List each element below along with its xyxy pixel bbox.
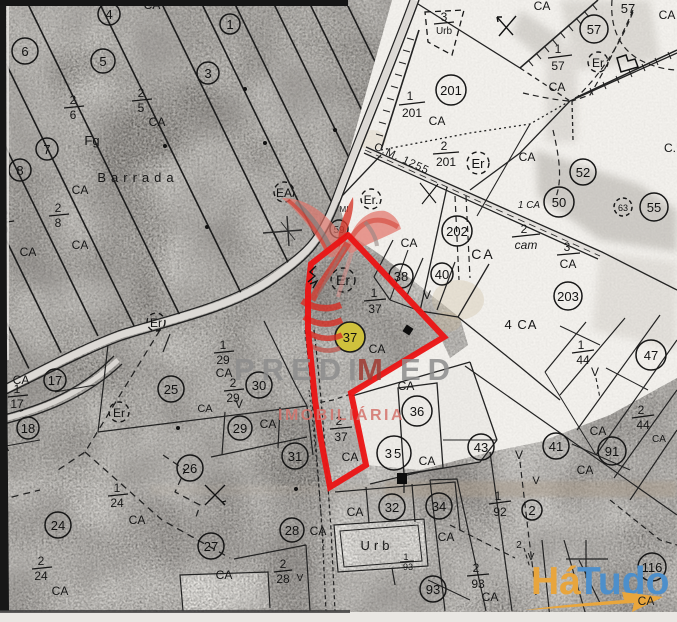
svg-text:CA: CA bbox=[52, 584, 69, 598]
svg-text:CA: CA bbox=[471, 246, 494, 262]
svg-text:V: V bbox=[297, 573, 304, 584]
svg-text:44: 44 bbox=[576, 353, 590, 367]
svg-text:29: 29 bbox=[216, 353, 230, 367]
svg-text:V: V bbox=[591, 365, 599, 379]
svg-text:CA: CA bbox=[310, 524, 327, 538]
svg-text:CA: CA bbox=[342, 450, 359, 464]
svg-text:2: 2 bbox=[55, 201, 62, 215]
svg-text:1: 1 bbox=[220, 338, 227, 352]
svg-text:34: 34 bbox=[432, 499, 446, 514]
svg-text:36: 36 bbox=[410, 404, 424, 419]
svg-text:1: 1 bbox=[14, 382, 21, 396]
svg-text:44: 44 bbox=[636, 418, 650, 432]
svg-text:1 CA: 1 CA bbox=[518, 200, 541, 211]
svg-text:93: 93 bbox=[403, 562, 413, 572]
svg-text:6: 6 bbox=[70, 108, 77, 122]
svg-text:Er: Er bbox=[592, 56, 604, 70]
svg-text:ED: ED bbox=[400, 352, 457, 387]
svg-text:57: 57 bbox=[551, 59, 565, 73]
svg-text:V: V bbox=[235, 397, 243, 411]
svg-text:1: 1 bbox=[555, 42, 562, 56]
svg-text:CA: CA bbox=[72, 183, 89, 197]
svg-text:Fg: Fg bbox=[84, 133, 99, 148]
svg-text:3: 3 bbox=[564, 240, 571, 254]
svg-text:28: 28 bbox=[276, 572, 290, 586]
svg-text:CA: CA bbox=[560, 257, 577, 271]
svg-text:37: 37 bbox=[334, 430, 348, 444]
svg-text:2: 2 bbox=[638, 403, 645, 417]
svg-text:IMOBILIÁRIA: IMOBILIÁRIA bbox=[278, 405, 405, 424]
svg-text:2: 2 bbox=[528, 503, 535, 518]
svg-text:cam: cam bbox=[515, 238, 538, 252]
svg-text:93: 93 bbox=[471, 577, 485, 591]
svg-text:50: 50 bbox=[552, 195, 566, 210]
svg-text:CA: CA bbox=[401, 236, 418, 250]
svg-text:28: 28 bbox=[285, 523, 299, 538]
svg-text:29: 29 bbox=[233, 421, 247, 436]
svg-text:Er: Er bbox=[472, 156, 486, 171]
svg-text:2: 2 bbox=[280, 557, 287, 571]
svg-text:CA: CA bbox=[149, 115, 166, 129]
svg-text:8: 8 bbox=[16, 163, 23, 178]
svg-text:24: 24 bbox=[51, 518, 65, 533]
svg-text:201: 201 bbox=[436, 155, 456, 169]
svg-text:31: 31 bbox=[288, 449, 302, 464]
svg-text:24: 24 bbox=[110, 496, 124, 510]
svg-text:18: 18 bbox=[21, 421, 35, 436]
svg-text:CA: CA bbox=[129, 513, 146, 527]
svg-text:V: V bbox=[423, 288, 431, 302]
svg-text:CA: CA bbox=[216, 568, 233, 582]
svg-text:57: 57 bbox=[587, 22, 601, 37]
svg-text:2: 2 bbox=[521, 222, 528, 236]
svg-text:2: 2 bbox=[516, 540, 522, 551]
svg-text:203: 203 bbox=[557, 289, 579, 304]
svg-text:47: 47 bbox=[644, 348, 658, 363]
svg-text:41: 41 bbox=[549, 439, 563, 454]
svg-text:CA: CA bbox=[72, 238, 89, 252]
svg-text:5: 5 bbox=[138, 101, 145, 115]
svg-text:93: 93 bbox=[426, 582, 440, 597]
svg-text:32: 32 bbox=[385, 500, 399, 515]
svg-text:57: 57 bbox=[621, 1, 635, 16]
svg-text:V: V bbox=[532, 475, 540, 487]
svg-text:CA: CA bbox=[534, 0, 551, 13]
svg-text:26: 26 bbox=[183, 461, 197, 476]
svg-text:CA: CA bbox=[260, 417, 277, 431]
svg-text:1: 1 bbox=[403, 552, 408, 562]
svg-text:4: 4 bbox=[105, 7, 112, 22]
svg-text:CA: CA bbox=[652, 434, 666, 445]
svg-text:Há: Há bbox=[531, 560, 581, 603]
svg-text:Er: Er bbox=[150, 316, 162, 330]
svg-text:43: 43 bbox=[474, 440, 488, 455]
svg-text:Er.: Er. bbox=[364, 193, 379, 207]
svg-text:Barrada: Barrada bbox=[97, 170, 178, 185]
svg-text:40: 40 bbox=[435, 267, 449, 282]
svg-text:CA: CA bbox=[638, 594, 655, 608]
svg-text:1: 1 bbox=[371, 286, 378, 300]
svg-text:Urb: Urb bbox=[361, 538, 394, 553]
svg-text:Urb: Urb bbox=[436, 26, 453, 37]
svg-text:Er: Er bbox=[113, 406, 125, 420]
svg-text:52: 52 bbox=[576, 165, 590, 180]
svg-text:CA: CA bbox=[438, 530, 455, 544]
svg-text:CA: CA bbox=[482, 590, 499, 604]
svg-text:202: 202 bbox=[446, 224, 468, 239]
svg-text:CA: CA bbox=[519, 150, 536, 164]
svg-text:EA: EA bbox=[276, 186, 292, 200]
svg-text:CA: CA bbox=[549, 80, 566, 94]
svg-text:2: 2 bbox=[38, 554, 45, 568]
svg-text:35: 35 bbox=[385, 446, 403, 461]
svg-text:201: 201 bbox=[402, 106, 422, 120]
svg-text:3: 3 bbox=[441, 10, 448, 24]
svg-text:CA: CA bbox=[429, 114, 446, 128]
svg-text:CA: CA bbox=[197, 403, 213, 415]
svg-text:25: 25 bbox=[164, 382, 178, 397]
svg-text:17: 17 bbox=[10, 397, 24, 411]
svg-text:V: V bbox=[515, 448, 523, 462]
svg-text:CA: CA bbox=[347, 505, 364, 519]
svg-text:2: 2 bbox=[441, 139, 448, 153]
svg-text:92: 92 bbox=[493, 505, 507, 519]
svg-text:2: 2 bbox=[473, 561, 480, 575]
svg-text:CA: CA bbox=[659, 8, 676, 22]
svg-text:CA: CA bbox=[20, 245, 37, 259]
svg-text:2: 2 bbox=[138, 86, 145, 100]
svg-text:1: 1 bbox=[578, 338, 585, 352]
svg-text:1: 1 bbox=[407, 89, 414, 103]
svg-text:CA: CA bbox=[419, 454, 436, 468]
svg-text:M: M bbox=[357, 352, 390, 387]
svg-text:17: 17 bbox=[48, 373, 62, 388]
svg-text:55: 55 bbox=[647, 200, 661, 215]
svg-text:91: 91 bbox=[605, 444, 619, 459]
svg-text:37: 37 bbox=[368, 302, 382, 316]
svg-text:27: 27 bbox=[204, 539, 218, 554]
svg-text:1: 1 bbox=[495, 489, 502, 503]
svg-text:5: 5 bbox=[99, 54, 106, 69]
svg-text:201: 201 bbox=[440, 83, 462, 98]
svg-text:37: 37 bbox=[343, 330, 357, 345]
svg-text:4 CA: 4 CA bbox=[505, 317, 538, 332]
svg-text:3: 3 bbox=[204, 66, 211, 81]
svg-text:C.: C. bbox=[664, 141, 676, 155]
svg-text:63: 63 bbox=[618, 203, 628, 213]
svg-text:CA: CA bbox=[590, 424, 607, 438]
svg-text:CA: CA bbox=[577, 463, 594, 477]
svg-text:1: 1 bbox=[226, 17, 233, 32]
svg-text:8: 8 bbox=[55, 216, 62, 230]
svg-text:7: 7 bbox=[43, 142, 50, 157]
svg-text:1: 1 bbox=[114, 481, 121, 495]
svg-text:PREDI: PREDI bbox=[234, 352, 364, 387]
svg-text:6: 6 bbox=[21, 44, 28, 59]
svg-text:24: 24 bbox=[34, 569, 48, 583]
svg-text:2: 2 bbox=[70, 93, 77, 107]
